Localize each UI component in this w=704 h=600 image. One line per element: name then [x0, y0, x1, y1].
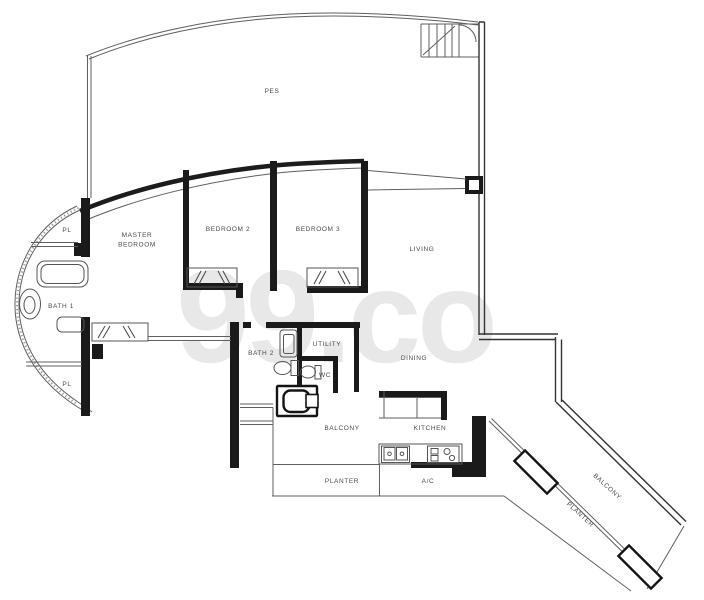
- room-label-bedroom-2: BEDROOM 2: [206, 226, 250, 233]
- stove-icon: [428, 446, 460, 463]
- room-label-living: LIVING: [410, 246, 435, 253]
- room-label-kitchen: KITCHEN: [414, 425, 447, 432]
- left-curved-wall: [15, 206, 92, 415]
- room-label-pes: PES: [265, 88, 280, 95]
- room-label-bath-1: BATH 1: [48, 303, 74, 310]
- room-label-wc: WC: [319, 372, 331, 379]
- pes-boundary: [86, 13, 478, 198]
- room-label-planter: PLANTER: [325, 478, 359, 485]
- room-label-balcony-diagonal: BALCONY: [592, 472, 623, 501]
- staircase-icon: [421, 24, 479, 57]
- room-label-balcony: BALCONY: [324, 425, 359, 432]
- room-label-dining: DINING: [401, 355, 427, 362]
- room-label-ac-ledge: A/C: [422, 478, 435, 485]
- bath1-fixtures: [20, 261, 89, 332]
- sink-icon: [382, 446, 410, 463]
- perimeter-walls: [479, 22, 686, 589]
- room-label-pl-upper: PL: [62, 227, 71, 234]
- toilet-icon: [57, 317, 84, 332]
- room-label-bath-2: BATH 2: [248, 350, 274, 357]
- north-curved-wall: [80, 161, 364, 221]
- room-label-pl-lower: PL: [62, 381, 71, 388]
- room-label-utility: UTILITY: [313, 341, 341, 348]
- basin-icon: [20, 289, 41, 319]
- room-label-master-bedroom: MASTERBEDROOM: [118, 232, 156, 249]
- laundry-fixture-icon: [277, 386, 318, 416]
- room-label-bedroom-3: BEDROOM 3: [296, 226, 340, 233]
- floorplan-canvas: 99.co: [0, 0, 704, 600]
- kitchen-fixtures: [382, 446, 460, 463]
- floorplan-page: 99.co: [0, 0, 704, 600]
